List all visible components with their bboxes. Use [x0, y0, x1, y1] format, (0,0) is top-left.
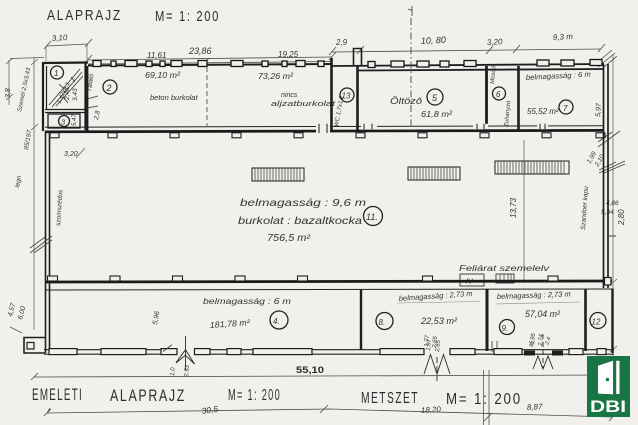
svg-text:beton burkolat: beton burkolat — [150, 93, 198, 102]
svg-text:METSZET: METSZET — [361, 390, 419, 407]
svg-text:M= 1: 200: M= 1: 200 — [228, 387, 281, 404]
svg-text:55,10: 55,10 — [296, 365, 324, 375]
svg-text:11,61: 11,61 — [147, 51, 166, 60]
svg-text:8,87: 8,87 — [527, 402, 544, 412]
svg-text:18,20: 18,20 — [421, 405, 442, 415]
svg-text:6: 6 — [496, 90, 501, 99]
svg-text:1,0: 1,0 — [170, 367, 177, 376]
svg-text:4.: 4. — [273, 317, 280, 326]
svg-text:Feliárat szemelelv: Feliárat szemelelv — [459, 263, 550, 273]
svg-text:ALAPRAJZ: ALAPRAJZ — [110, 387, 186, 405]
svg-text:3,20: 3,20 — [64, 151, 78, 158]
svg-text:22,53 m²: 22,53 m² — [420, 316, 458, 326]
svg-text:ALAPRAJZ: ALAPRAJZ — [47, 7, 122, 24]
svg-text:aljzatburkolat: aljzatburkolat — [271, 99, 336, 108]
svg-text:9.: 9. — [502, 324, 509, 333]
svg-text:55,52 m²: 55,52 m² — [527, 107, 559, 116]
svg-text:2,9: 2,9 — [335, 38, 348, 47]
svg-text:belmagasság : 9,6 m: belmagasság : 9,6 m — [240, 197, 366, 209]
svg-text:1: 1 — [54, 69, 58, 78]
svg-text:5,47: 5,47 — [72, 114, 78, 126]
svg-text:3,20: 3,20 — [487, 37, 504, 47]
svg-text:belmagasság : 6 m: belmagasság : 6 m — [203, 296, 291, 306]
svg-text:3,10: 3,10 — [52, 33, 69, 43]
svg-text:3,43: 3,43 — [72, 88, 79, 101]
svg-text:M= 1: 200: M= 1: 200 — [446, 391, 522, 408]
svg-text:nincs: nincs — [281, 92, 298, 99]
svg-text:EMELETI: EMELETI — [32, 386, 83, 404]
svg-text:73,26 m²: 73,26 m² — [258, 71, 294, 81]
svg-text:11.: 11. — [366, 212, 378, 222]
svg-text:69,10 m²: 69,10 m² — [145, 70, 181, 80]
svg-text:5,97: 5,97 — [595, 102, 603, 117]
svg-text:1,97: 1,97 — [426, 338, 433, 351]
svg-text:57,04 m²: 57,04 m² — [525, 309, 561, 319]
svg-text:DBI: DBI — [590, 397, 626, 416]
svg-text:2,65: 2,65 — [435, 339, 442, 353]
svg-text:61,8 m²: 61,8 m² — [421, 109, 453, 119]
svg-text:10, 80: 10, 80 — [421, 35, 447, 46]
svg-text:2: 2 — [106, 83, 112, 93]
svg-text:2,74: 2,74 — [538, 333, 545, 347]
svg-text:2,80: 2,80 — [617, 209, 626, 226]
svg-text:Öltöző: Öltöző — [390, 96, 423, 107]
svg-text:12: 12 — [592, 318, 601, 327]
svg-text:3,8: 3,8 — [5, 88, 12, 98]
svg-text:8.: 8. — [379, 318, 386, 327]
svg-text:23,86: 23,86 — [188, 46, 212, 56]
svg-text:7: 7 — [563, 104, 568, 113]
svg-text:9,3 m: 9,3 m — [553, 32, 574, 42]
svg-text:19,25: 19,25 — [278, 50, 299, 59]
svg-text:M= 1: 200: M= 1: 200 — [155, 8, 220, 25]
svg-text:burkolat : bazaltkocka: burkolat : bazaltkocka — [238, 215, 362, 227]
svg-text:13,73: 13,73 — [509, 197, 518, 218]
svg-text:756,5 m²: 756,5 m² — [267, 233, 311, 244]
